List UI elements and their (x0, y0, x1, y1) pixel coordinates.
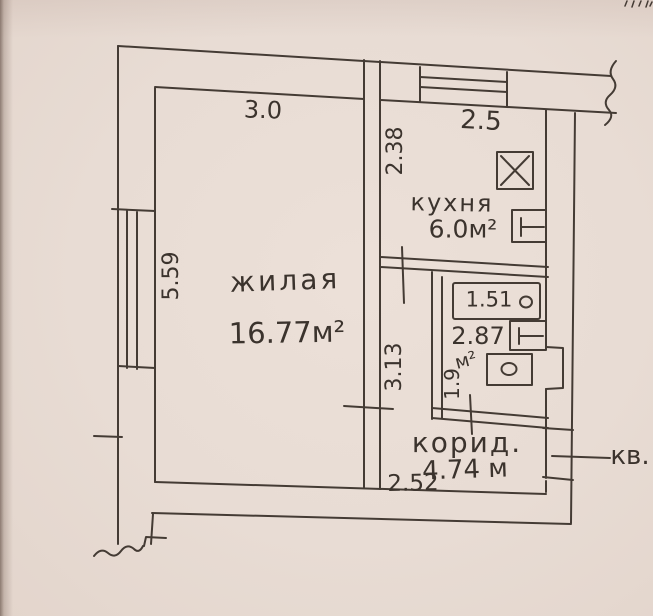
outer-walls (118, 46, 616, 544)
dim-kitchen-depth: 2.38 (385, 127, 407, 176)
dim-kitchen-width: 2.5 (460, 107, 503, 135)
inner-wall-middle (344, 60, 393, 489)
room-label-living: жилая (229, 265, 340, 297)
floor-plan-photo: 3.0 2.5 2.38 5.59 3.13 1.9 1.51 2.52 жил… (0, 0, 653, 616)
dim-living-depth: 5.59 (161, 252, 183, 301)
room-label-kitchen: кухня (410, 190, 493, 215)
wash-basin-icon (510, 321, 546, 350)
window-hatch-icon (420, 67, 507, 106)
photo-edge-marks (625, 1, 652, 7)
dim-bathtub-length: 1.51 (466, 290, 513, 311)
entrance-label: кв. (610, 443, 649, 469)
room-area-bathroom: 2.87 (451, 324, 504, 348)
inner-wall-kitchen (380, 247, 548, 303)
room-area-living: 16.77м² (228, 317, 345, 348)
room-area-kitchen: 6.0м² (429, 217, 498, 242)
room-area-bathroom-unit: м² (453, 349, 479, 373)
entrance-door (543, 428, 610, 480)
dim-living-width: 3.0 (244, 97, 283, 122)
stove-icon (497, 152, 533, 189)
kitchen-sink-icon (512, 210, 546, 242)
window-hatch-icon (94, 209, 155, 437)
toilet-icon (487, 354, 532, 385)
dim-inner-wall: 3.13 (384, 343, 406, 392)
room-area-corridor: 4.74 м (422, 456, 509, 485)
floor-plan-drawing (0, 0, 653, 616)
